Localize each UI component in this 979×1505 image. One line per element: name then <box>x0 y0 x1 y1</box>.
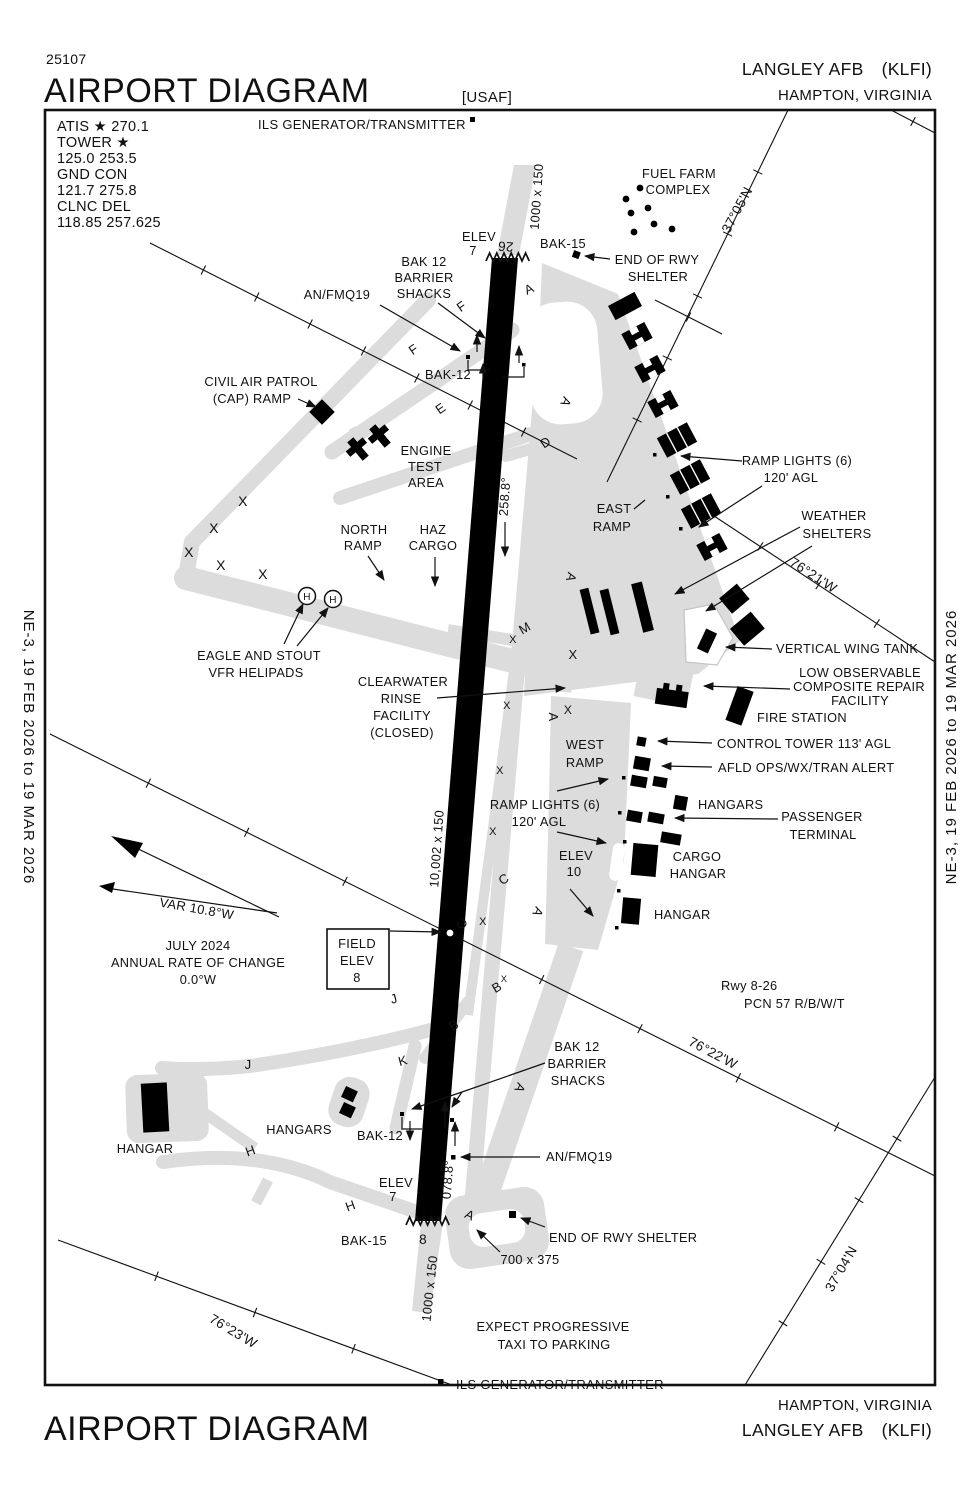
frequency-block: ATIS ★ 270.1 TOWER ★ 125.0 253.5 GND CON… <box>57 119 161 231</box>
map-label-bak15-bot: BAK-15 <box>341 1233 387 1248</box>
cargo-hangar-building <box>631 843 659 877</box>
map-label-eagle-1: EAGLE AND STOUT <box>197 648 321 663</box>
passenger-terminal-2 <box>647 812 664 825</box>
map-label-expect-2: TAXI TO PARKING <box>497 1337 610 1352</box>
taxiway-letter-J-17: J <box>245 1057 252 1072</box>
map-label-dim-top: 1000 x 150 <box>527 163 547 230</box>
graticule-tick <box>539 975 543 984</box>
taxiway-letter-F-8: F <box>406 341 421 358</box>
graticule-tick <box>736 1073 740 1082</box>
map-label-elev-10-1: ELEV <box>559 848 593 863</box>
graticule-tick <box>201 266 206 275</box>
closed-taxiway-x-7: X <box>509 634 517 646</box>
map-label-lat-3705: 37°05'N <box>719 184 756 235</box>
closed-taxiway-x-1: X <box>209 520 219 536</box>
page-title: AIRPORT DIAGRAM <box>44 72 370 110</box>
closed-taxiway-x-6: X <box>564 703 572 717</box>
taxiway-letter-A-4: A <box>529 905 546 919</box>
map-label-hangar-south: HANGAR <box>117 1141 174 1156</box>
control-tower-building <box>636 736 646 746</box>
map-label-ramp-lights-mid-2: 120' AGL <box>512 814 567 829</box>
hangar-mid-building <box>621 897 641 924</box>
map-label-july-3: 0.0°W <box>180 972 217 987</box>
map-label-anfmq19-bot: AN/FMQ19 <box>546 1149 612 1164</box>
map-label-cargo-1: CARGO <box>673 849 721 864</box>
map-label-fuel-farm-2: COMPLEX <box>646 182 711 197</box>
map-label-fuel-farm-1: FUEL FARM <box>642 166 716 181</box>
map-label-rwy-8: 8 <box>419 1232 427 1247</box>
map-label-end-rwy-bot: END OF RWY SHELTER <box>549 1230 697 1245</box>
taxiway-letter-F-7: F <box>454 298 469 315</box>
map-label-fire-station: FIRE STATION <box>757 710 847 725</box>
taxiway-letter-H-20: H <box>343 1197 357 1214</box>
helipad-letter: H <box>303 592 311 603</box>
org-label: [USAF] <box>462 89 512 106</box>
helipad-2: H <box>325 591 342 608</box>
map-label-lon-7621: 76°21'W <box>787 555 840 596</box>
map-label-vert-wing-tank: VERTICAL WING TANK <box>776 641 918 656</box>
map-label-field-elev-2: ELEV <box>340 953 374 968</box>
map-label-cargo-2: HANGAR <box>670 866 727 881</box>
taxiway-letter-A-3: A <box>546 713 561 722</box>
graticule-tick <box>834 1122 838 1131</box>
map-label-shacks-bot-3: SHACKS <box>551 1073 605 1088</box>
field-elevation-point <box>447 930 454 937</box>
map-label-cap-2: (CAP) RAMP <box>213 391 291 406</box>
map-label-hdg-258: 258.8° <box>496 477 514 517</box>
graticule-tick <box>415 374 420 383</box>
map-label-engine-2: TEST <box>408 459 442 474</box>
map-label-field-elev-1: FIELD <box>338 936 376 951</box>
map-label-shacks-bot-1: BAK 12 <box>554 1039 599 1054</box>
city-bottom: HAMPTON, VIRGINIA <box>778 1397 932 1414</box>
map-label-clearwater-3: FACILITY <box>373 708 431 723</box>
map-label-hangars-west: HANGARS <box>698 797 763 812</box>
graticule-tick <box>693 294 702 298</box>
airport-name-top: LANGLEY AFB(KLFI) <box>742 59 932 79</box>
graticule-tick <box>779 1321 788 1326</box>
map-label-clearwater-4: (CLOSED) <box>370 725 434 740</box>
closed-taxiway-x-11: X <box>479 916 487 928</box>
map-label-july-1: JULY 2024 <box>166 938 231 953</box>
map-label-ramp-lights-mid-1: RAMP LIGHTS (6) <box>490 797 600 812</box>
freq-gndcon-values: 121.7 275.8 <box>57 183 137 199</box>
graticule-tick <box>911 117 916 126</box>
map-label-lon-7623: 76°23'W <box>207 1311 260 1351</box>
map-label-lowobs-1: LOW OBSERVABLE <box>799 665 921 680</box>
map-label-elev-bot-2: 7 <box>389 1189 396 1204</box>
map-label-shacks-top-3: SHACKS <box>397 286 451 301</box>
map-label-end-rwy-top-2: SHELTER <box>628 269 688 284</box>
map-label-hangar-mid: HANGAR <box>654 907 711 922</box>
map-label-east-ramp-2: RAMP <box>593 519 631 534</box>
map-label-weather-1: WEATHER <box>801 508 866 523</box>
map-label-eagle-2: VFR HELIPADS <box>208 665 303 680</box>
chart-number: 25107 <box>46 51 86 67</box>
anfmq19-south-icon <box>451 1155 456 1160</box>
map-label-hangars-south: HANGARS <box>266 1122 331 1137</box>
closed-taxiway-x-12: X <box>501 974 507 984</box>
ils-marker-top-icon <box>470 117 475 122</box>
map-label-bak15-top: BAK-15 <box>540 236 586 251</box>
right-margin-note: NE-3, 19 FEB 2026 to 19 MAR 2026 <box>943 610 960 885</box>
map-label-engine-1: ENGINE <box>401 443 452 458</box>
freq-clncdel-values: 118.85 257.625 <box>57 215 161 231</box>
map-label-haz-1: HAZ <box>420 522 447 537</box>
map-label-bak12-bot: BAK-12 <box>357 1128 403 1143</box>
freq-tower: TOWER ★ <box>57 135 130 151</box>
map-label-dim-700: 700 x 375 <box>501 1252 560 1267</box>
map-label-passenger-2: TERMINAL <box>789 827 856 842</box>
footer-title: AIRPORT DIAGRAM <box>44 1410 370 1448</box>
map-label-shacks-top-1: BAK 12 <box>401 254 446 269</box>
closed-taxiway-x-4: X <box>258 566 268 582</box>
graticule-tick <box>343 877 347 886</box>
map-label-cap-1: CIVIL AIR PATROL <box>204 374 317 389</box>
map-label-pcn-1: Rwy 8-26 <box>721 978 777 993</box>
taxiway-letter-J-16: J <box>389 991 399 1007</box>
closed-diagonal-taxiway <box>192 300 428 542</box>
map-label-rwy-26: 26 <box>497 238 514 254</box>
ils-marker-bot-icon <box>438 1379 444 1385</box>
graticule-tick <box>855 1198 864 1203</box>
end-rwy-shelter-top-icon <box>572 250 581 259</box>
map-label-shacks-bot-2: BARRIER <box>548 1056 607 1071</box>
map-label-west-ramp-1: WEST <box>566 737 604 752</box>
svg-text:H: H <box>329 595 337 606</box>
map-label-lon-7622: 76°22'W <box>686 1034 740 1072</box>
map-label-shacks-top-2: BARRIER <box>395 270 454 285</box>
graticule-tick <box>663 356 672 360</box>
left-margin-note: NE-3, 19 FEB 2026 to 19 MAR 2026 <box>20 610 37 885</box>
map-label-east-ramp-1: EAST <box>597 501 632 516</box>
afld-ops-building <box>633 756 651 772</box>
map-label-elev-bot-1: ELEV <box>379 1175 413 1190</box>
map-label-bak12-top: BAK-12 <box>425 367 471 382</box>
map-label-ramp-lights-top-1: RAMP LIGHTS (6) <box>742 453 852 468</box>
map-label-ils-top: ILS GENERATOR/TRANSMITTER <box>258 117 466 132</box>
map-label-pcn-2: PCN 57 R/B/W/T <box>744 996 845 1011</box>
taxiway-letter-A-0: A <box>522 280 536 297</box>
graticule-tick <box>146 779 150 788</box>
closed-taxiway-x-2: X <box>184 544 194 560</box>
map-label-field-elev-3: 8 <box>353 970 360 985</box>
graticule-tick <box>638 1024 642 1033</box>
helipad-1: H <box>299 588 316 605</box>
graticule-tick <box>468 401 473 410</box>
end-rwy-shelter-bot-icon <box>509 1211 516 1218</box>
map-label-end-rwy-top-1: END OF RWY <box>615 252 700 267</box>
closed-taxiway-x-10: X <box>489 826 497 838</box>
freq-tower-values: 125.0 253.5 <box>57 151 137 167</box>
map-label-clearwater-1: CLEARWATER <box>358 674 448 689</box>
closed-taxiway-x-0: X <box>238 493 248 509</box>
map-label-passenger-1: PASSENGER <box>781 809 862 824</box>
map-label-var: VAR 10.8°W <box>158 895 235 923</box>
south-hangar-building <box>141 1082 170 1132</box>
passenger-terminal-1 <box>626 810 643 823</box>
map-label-north-ramp-2: RAMP <box>344 538 382 553</box>
closed-taxiway-x-9: X <box>496 765 504 777</box>
freq-atis: ATIS ★ 270.1 <box>57 119 149 135</box>
map-label-elev-top-2: 7 <box>469 243 476 258</box>
airport-diagram-page: H H <box>0 0 979 1500</box>
graticule-tick <box>817 1259 826 1264</box>
graticule-tick <box>874 619 880 627</box>
graticule-tick <box>244 828 248 837</box>
freq-clncdel: CLNC DEL <box>57 199 131 215</box>
map-label-west-ramp-2: RAMP <box>566 755 604 770</box>
map-label-expect-1: EXPECT PROGRESSIVE <box>476 1319 629 1334</box>
fire-station-building <box>725 686 753 726</box>
city-top: HAMPTON, VIRGINIA <box>778 87 932 104</box>
map-label-elev-top-1: ELEV <box>462 229 496 244</box>
closed-taxiway-x-5: X <box>569 647 578 662</box>
map-label-july-2: ANNUAL RATE OF CHANGE <box>111 955 285 970</box>
map-label-north-ramp-1: NORTH <box>341 522 388 537</box>
graticule-tick <box>308 320 313 329</box>
map-label-lowobs-3: FACILITY <box>831 693 889 708</box>
airport-name-bottom: LANGLEY AFB(KLFI) <box>742 1420 932 1440</box>
map-label-anfmq19-top: AN/FMQ19 <box>304 287 370 302</box>
map-label-weather-2: SHELTERS <box>802 526 871 541</box>
map-label-clearwater-2: RINSE <box>381 691 422 706</box>
graticule-tick <box>753 170 762 174</box>
hangars-west-building <box>673 795 688 811</box>
map-label-haz-2: CARGO <box>409 538 457 553</box>
freq-gndcon: GND CON <box>57 167 128 183</box>
map-label-lowobs-2: COMPOSITE REPAIR <box>793 679 925 694</box>
map-label-control-tower: CONTROL TOWER 113' AGL <box>717 736 891 751</box>
closed-taxiway-x-8: X <box>503 700 511 712</box>
map-label-ramp-lights-top-2: 120' AGL <box>764 470 819 485</box>
graticule-tick <box>893 1136 902 1141</box>
graticule-tick <box>254 293 259 302</box>
airport-diagram-chart: H H <box>0 0 979 1500</box>
map-label-hdg-078: 078.8° <box>439 1160 457 1200</box>
map-label-elev-10-2: 10 <box>567 864 582 879</box>
map-label-engine-3: AREA <box>408 475 444 490</box>
taxiway-letter-E-9: E <box>432 400 448 417</box>
closed-taxiway-x-3: X <box>216 557 226 573</box>
map-label-afld-ops: AFLD OPS/WX/TRAN ALERT <box>718 760 894 775</box>
taxiway-j <box>162 1028 438 1069</box>
